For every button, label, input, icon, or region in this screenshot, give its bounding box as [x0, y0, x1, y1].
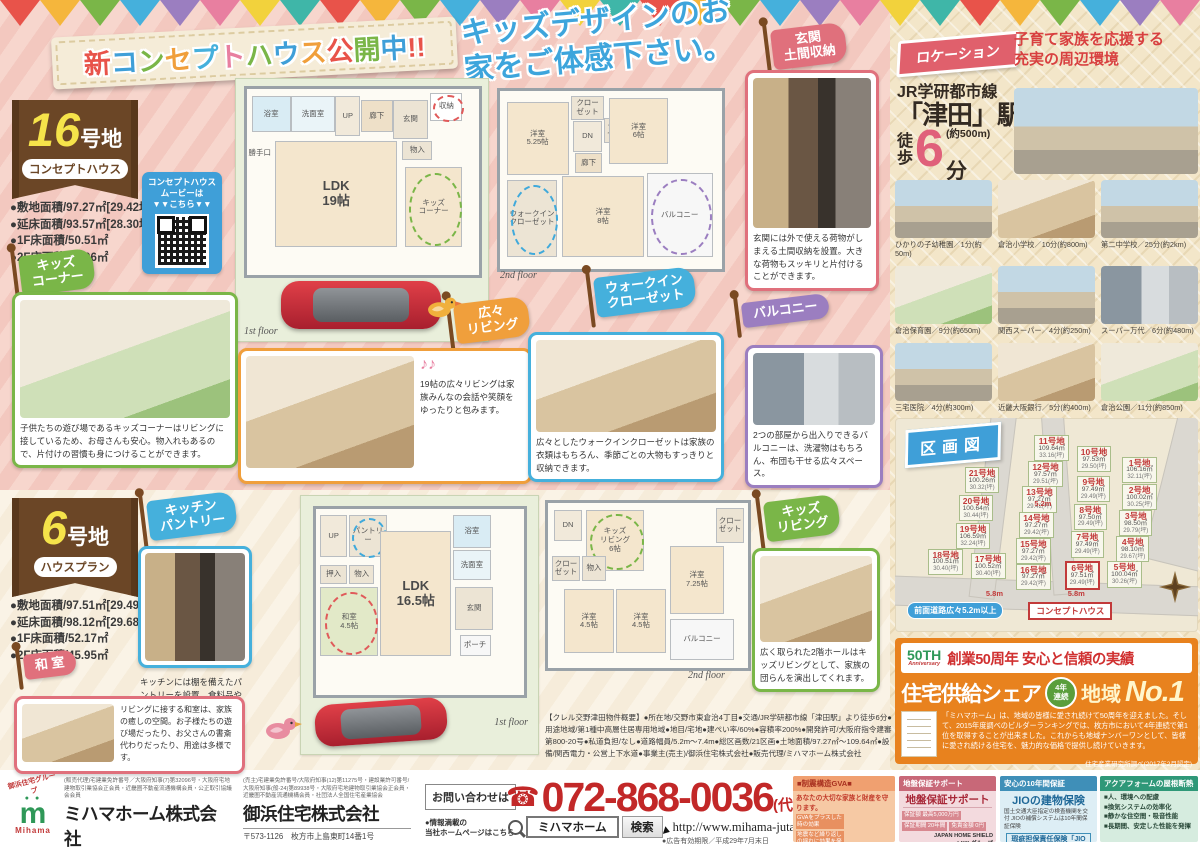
map-lot: 15号地97.27㎡29.42(坪)	[1016, 538, 1050, 564]
living-card-body: ♪♪ 19帖の広々リビングは家族みんなの会話や笑顔をゆったりと包みます。	[246, 356, 524, 468]
phone-icon: ☎	[506, 782, 540, 813]
aquafoam-badge: アクアフォームの屋根断熱 ■人、環境への配慮■換気システムの効率化■静かな住空間…	[1100, 776, 1198, 842]
room-クローゼット: クロー ゼット	[571, 96, 604, 119]
washitsu-photo	[22, 704, 114, 762]
map-lot-area: 97.27㎡	[1023, 523, 1049, 530]
qr-caption-line2: ムービーは	[146, 188, 218, 199]
map-lot: 9号地97.49㎡29.49(坪)	[1077, 476, 1110, 502]
living-caption-col: ♪♪ 19帖の広々リビングは家族みんなの会話や笑顔をゆったりと包みます。	[420, 356, 516, 468]
kids-corner-photo	[20, 300, 230, 418]
spot-caption: 近畿大阪銀行／5分(約400m)	[998, 403, 1095, 412]
lot16-tag: コンセプトハウス	[22, 159, 128, 179]
spot-card: 倉治保育園／9分(約650m)	[895, 266, 992, 335]
room-洋室4.5帖: 洋室 4.5帖	[616, 589, 666, 654]
spot-caption: 三宅医院／4分(約300m)	[895, 403, 992, 412]
map-lot-tsubo: 29.42(坪)	[1023, 530, 1049, 536]
room-UP: UP	[335, 96, 360, 135]
bunting-triangle	[1000, 0, 1040, 26]
room-LDK19帖: LDK 19帖	[275, 141, 398, 247]
company2-license: (売主)宅建業免許番号/大阪府知事(12)第11275号・建設業許可番号/大阪府…	[243, 778, 411, 801]
phone-row: ☎ 072-868-0036 (代)	[506, 774, 798, 821]
balcony-card: 2つの部屋から出入りできるバルコニーは、洗濯物はもちろん、布団も干せる広々スペー…	[745, 345, 883, 488]
car-illustration	[281, 281, 441, 329]
map-dim-b: 5.8m	[986, 589, 1003, 598]
aquafoam-header: アクアフォームの屋根断熱	[1100, 776, 1198, 791]
kids-living-caption: 広く取られた2階ホールはキッズリビングとして、家族の団らんを演出してくれます。	[760, 646, 872, 684]
search-button[interactable]: 検索	[622, 816, 663, 838]
map-lot-tsubo: 29.67(坪)	[1120, 554, 1145, 560]
room-物入: 物入	[582, 556, 606, 581]
room-収納: 収納	[430, 93, 462, 121]
qr-movie-box: コンセプトハウス ムービーは ▼▼こちら▼▼	[142, 172, 222, 274]
spec-item: ●延床面積/98.12㎡[29.68坪]	[10, 615, 154, 632]
lot16-floor1-label: 1st floor	[244, 326, 278, 337]
wic-caption: 広々としたウォークインクローゼットは家族の衣類はもちろん、季節ごとの大物もすっき…	[536, 436, 716, 474]
lot6-number: 6	[41, 506, 67, 551]
kids-living-photo	[760, 556, 872, 642]
gva-header: ■制震構造GVA■	[793, 776, 895, 791]
spot-photo	[998, 343, 1095, 401]
lot6-floor2-label: 2nd floor	[688, 670, 725, 681]
spec-item: ●1F床面積/52.17㎡	[10, 631, 154, 648]
lot6-floor1-label: 1st floor	[494, 717, 528, 728]
aquafoam-items: ■人、環境への配慮■換気システムの効率化■静かな住空間・吸音性能■長期間、安定し…	[1100, 791, 1198, 833]
ground-warranty-title: 地盤保証サポート	[903, 792, 992, 808]
anniversary-header: 50THAnniversary 創業50周年 安心と信頼の実績	[901, 643, 1192, 673]
ground-warranty-header: 地盤保証サポート	[899, 776, 996, 791]
homepage-note: ●情報満載の当社ホームページはこちら	[425, 818, 515, 838]
map-lot: 20号地100.64㎡30.44(坪)	[959, 495, 994, 521]
location-headline-line2: 充実の周辺環境	[1014, 51, 1119, 68]
search-row: ミハマホーム 検索 http://www.mihama-jutaku.co.jp	[508, 816, 835, 838]
company-logo: 御浜住宅グループ m Mihama	[6, 776, 60, 835]
bunting-triangle	[280, 0, 320, 26]
living-card: ♪♪ 19帖の広々リビングは家族みんなの会話や笑顔をゆったりと包みます。	[238, 348, 532, 484]
spot-photo	[1101, 343, 1198, 401]
map-dim-a: 5.2m	[1034, 499, 1051, 508]
spot-card: 近畿大阪銀行／5分(約400m)	[998, 343, 1095, 412]
room-洗面室: 洗面室	[291, 96, 335, 131]
lot6-floorplan-1f: UPパントリー浴室洗面室押入物入和室 4.5帖LDK 16.5帖玄関ポーチ	[313, 506, 527, 698]
washitsu-card: リビングに接する和室は、家族の癒しの空間。お子様たちの遊び場だったり、お父さんの…	[14, 696, 245, 774]
headline-char: ス	[299, 37, 328, 68]
map-lot-tsubo: 29.79(坪)	[1123, 528, 1148, 534]
anniversary-block: 50THAnniversary 創業50周年 安心と信頼の実績 住宅供給シェア …	[895, 638, 1198, 764]
spec-item: ●敷地面積/97.51㎡[29.49坪]	[10, 598, 154, 615]
lot6-floorplan-2f: DNキッズ リビング 6帖クロー ゼットクロー ゼット物入洋室 4.5帖洋室 4…	[545, 500, 751, 671]
region-label: 地域	[1081, 678, 1121, 707]
company1-license: (販売代理)宅建業免許番号／大阪府知事(7)第32096号・大阪府宅地建物取引業…	[64, 778, 232, 801]
warranty-cell: 保証期間 20年間	[902, 822, 947, 831]
map-lot: 14号地97.27㎡29.42(坪)	[1019, 512, 1053, 538]
map-lot-tsubo: 29.49(坪)	[1078, 521, 1103, 527]
room-DN: DN	[573, 121, 602, 151]
ad-expiry-note: ●広告有効期限／平成29年7月末日	[662, 836, 769, 846]
bunting-triangle	[1040, 0, 1080, 26]
walk-time-block: 徒歩 6 (約500m) 分	[897, 126, 990, 185]
bunting-triangle	[0, 0, 40, 26]
50th-anniversary-logo: 50THAnniversary	[907, 648, 941, 668]
map-lot-area: 106.59㎡	[960, 534, 987, 541]
map-lot-area: 97.53㎡	[1081, 457, 1107, 464]
spot-photo	[998, 266, 1095, 324]
qr-caption-line3: ▼▼こちら▼▼	[146, 199, 218, 210]
genkan-storage-photo	[753, 78, 871, 228]
bunting-triangle	[1120, 0, 1160, 26]
map-lot: 3号地98.50㎡29.79(坪)	[1119, 510, 1152, 536]
jio-header: 安心の10年間保証	[1000, 776, 1097, 791]
highlight-circle	[651, 179, 712, 255]
map-lot-tsubo: 30.44(坪)	[963, 513, 990, 519]
map-lot-tsubo: 29.42(坪)	[1020, 581, 1046, 587]
spot-photo	[998, 180, 1095, 238]
company2-block: (売主)宅建業免許番号/大阪府知事(12)第11275号・建設業許可番号/大阪府…	[243, 778, 411, 842]
headline-char: !	[407, 32, 418, 62]
genkan-storage-caption: 玄関には外で使える荷物がしまえる土間収納を設置。大きな荷物もスッキリと片付けるこ…	[753, 232, 871, 283]
lot16-number: 16	[28, 108, 80, 153]
headline-char: ハ	[245, 40, 274, 71]
map-lot-area: 98.50㎡	[1123, 521, 1148, 528]
aquafoam-item: ■静かな住空間・吸音性能	[1104, 812, 1194, 822]
car-illustration-2	[314, 696, 449, 747]
lot16-floor2-label: 2nd floor	[500, 270, 537, 281]
room-和室4.5帖: 和室 4.5帖	[320, 587, 378, 656]
gva-badge: ■制震構造GVA■ あなたの大切な家族と財産を守ります。 GVAをプラスした時の…	[793, 776, 895, 842]
map-lot-area: 98.10㎡	[1120, 547, 1145, 554]
map-lot: 4号地98.10㎡29.67(坪)	[1116, 536, 1149, 562]
map-lot-tsubo: 30.32(坪)	[969, 485, 996, 491]
jio-insurance-badge: 安心の10年間保証 JIOの建物保険 国土交通大臣指定の検査機関を交付 JIOの…	[1000, 776, 1097, 842]
highlight-circle	[409, 173, 462, 246]
phone-number: 072-868-0036	[542, 774, 773, 821]
headline-char: コ	[110, 47, 139, 78]
map-lot: 5号地100.04㎡30.26(坪)	[1107, 561, 1142, 587]
headline-char: プ	[191, 42, 220, 73]
lixil-brand: LIXILグループ	[899, 839, 996, 842]
music-notes-icon: ♪♪	[420, 356, 516, 374]
room-洋室8帖: 洋室 8帖	[562, 176, 644, 256]
property-overview-text: 【クレル交野津田物件概要】●所在地/交野市東倉治4丁目●交通/JR学研都市線「津…	[545, 712, 893, 761]
map-lot: 8号地97.50㎡29.49(坪)	[1074, 504, 1107, 530]
contact-label: お問い合わせは	[425, 784, 516, 810]
anniversary-heading: 創業50周年 安心と信頼の実績	[947, 648, 1134, 669]
map-lot: 21号地100.26㎡30.32(坪)	[965, 467, 1000, 493]
room-物入: 物入	[349, 565, 374, 584]
spot-caption: スーパー万代／6分(約480m)	[1101, 326, 1198, 335]
map-lot-tsubo: 29.51(坪)	[1032, 479, 1058, 485]
highlight-circle	[511, 185, 558, 255]
bunting-triangle	[240, 0, 280, 26]
mihama-logo-text: Mihama	[6, 826, 60, 835]
company2-name: 御浜住宅株式会社	[243, 801, 411, 829]
room-洋室4.5帖: 洋室 4.5帖	[564, 589, 614, 654]
spot-card: ひかりの子幼稚園／1分(約50m)	[895, 180, 992, 258]
certificate-thumbnail	[901, 711, 937, 757]
room-物入: 物入	[402, 141, 432, 160]
bird-illustration	[424, 292, 462, 320]
room-ポーチ: ポーチ	[460, 635, 491, 656]
warranty-cell: 保証額 最高5,000万円	[902, 811, 961, 820]
map-lot-area: 100.52㎡	[975, 564, 1002, 571]
spot-caption: 倉治保育園／9分(約650m)	[895, 326, 992, 335]
room-クローゼット: クロー ゼット	[716, 508, 744, 543]
room-バルコニー: バルコニー	[647, 173, 713, 257]
room-クローゼット: クロー ゼット	[552, 556, 580, 581]
spot-card: 三宅医院／4分(約300m)	[895, 343, 992, 412]
map-lot-tsubo: 30.40(坪)	[975, 571, 1002, 577]
spot-photo	[895, 266, 992, 324]
bunting-triangle	[160, 0, 200, 26]
map-lot: 18号地100.51㎡30.40(坪)	[928, 549, 963, 575]
room-洗面室: 洗面室	[453, 550, 490, 580]
room-廊下: 廊下	[575, 153, 601, 173]
consecutive-years-badge: 4年連続	[1045, 677, 1077, 709]
room-バルコニー: バルコニー	[670, 619, 734, 661]
headline-char: 開	[353, 34, 382, 65]
headline-char: ン	[137, 45, 166, 76]
living-photo	[246, 356, 414, 468]
lot16-badge: 16号地 コンセプトハウス	[12, 100, 138, 199]
map-lot-area: 97.49㎡	[1081, 487, 1106, 494]
room-洋室6帖: 洋室 6帖	[609, 98, 669, 164]
room-玄関: 玄関	[393, 100, 427, 139]
lot6-suffix: 号地	[67, 526, 109, 549]
jio-title: JIOの建物保険	[1000, 792, 1097, 808]
map-lot-tsubo: 29.49(坪)	[1081, 494, 1106, 500]
spec-item: ●1F床面積/50.51㎡	[10, 233, 154, 250]
map-lot-tsubo: 33.16(坪)	[1038, 453, 1065, 459]
compass-icon	[1158, 570, 1192, 604]
map-lot: 17号地100.52㎡30.40(坪)	[971, 553, 1006, 579]
room-ウォークインクローゼット: ウォークイン クローゼット	[507, 180, 558, 257]
bunting-triangle	[800, 0, 840, 26]
spot-photo	[895, 343, 992, 401]
spot-caption: 倉治公園／11分(約850m)	[1101, 403, 1198, 412]
map-lot: 16号地97.27㎡29.42(坪)	[1016, 564, 1050, 590]
spot-card: 倉治公園／11分(約850m)	[1101, 343, 1198, 412]
map-lot-area: 109.64㎡	[1038, 446, 1065, 453]
pantry-photo	[145, 553, 245, 661]
spec-item: ●敷地面積/97.27㎡[29.42坪]	[10, 200, 154, 217]
bunting-triangle	[840, 0, 880, 26]
map-lot-tsubo: 32.11(坪)	[1126, 474, 1153, 480]
headline-char: 中	[380, 33, 409, 64]
headline-char: ウ	[272, 38, 301, 69]
bunting-triangle	[120, 0, 160, 26]
search-input[interactable]: ミハマホーム	[526, 816, 619, 838]
room-LDK16.5帖: LDK 16.5帖	[380, 531, 451, 656]
qr-code	[155, 214, 209, 268]
map-lot: 7号地97.49㎡29.49(坪)	[1071, 531, 1104, 557]
share-label: 住宅供給シェア	[901, 678, 1041, 708]
company2-address: 〒573-1126 枚方市上島東町14番1号	[243, 831, 411, 842]
spot-caption: 第二中学校／25分(約2km)	[1101, 240, 1198, 249]
spot-photo	[1101, 266, 1198, 324]
share-row: 住宅供給シェア 4年連続 地域 No.1	[901, 676, 1192, 709]
map-lot-area: 100.64㎡	[963, 506, 990, 513]
map-note-road: 前面道路広々5.2m以上	[907, 602, 1003, 619]
genkan-storage-card: 玄関には外で使える荷物がしまえる土間収納を設置。大きな荷物もスッキリと片付けるこ…	[745, 70, 879, 291]
lot16-suffix: 号地	[80, 128, 122, 151]
room-勝手口: 勝手口	[247, 145, 273, 162]
map-lot: 2号地100.02㎡30.25(坪)	[1122, 484, 1157, 510]
station-photo	[1014, 88, 1198, 174]
lot6-tag: ハウスプラン	[34, 557, 117, 577]
bunting-triangle	[960, 0, 1000, 26]
jio-body: 国土交通大臣指定の検査機関を交付 JIOの補償システムは10年間保証保険	[1000, 808, 1097, 832]
map-lot-tsubo: 30.40(坪)	[932, 566, 959, 572]
wic-photo	[536, 340, 716, 432]
map-lot-area: 97.27㎡	[1020, 549, 1046, 556]
spot-photo	[1101, 180, 1198, 238]
bunting-triangle	[80, 0, 120, 26]
anniversary-body-row: 「ミハマホーム」は、地域の皆様に愛され続けて50周年を迎えました。そして、201…	[901, 711, 1192, 757]
spot-caption: 倉治小学校／10分(約800m)	[998, 240, 1095, 249]
headline-char: 新	[83, 48, 112, 79]
jio-box: 瑕疵担保責任保険「JIOわが家の保険」	[1006, 833, 1091, 842]
spot-card: 関西スーパー／4分(約250m)	[998, 266, 1095, 335]
spot-photo	[895, 180, 992, 238]
map-lot-tsubo: 32.24(坪)	[960, 541, 987, 547]
walk-minutes: 6	[915, 126, 944, 173]
qr-caption-line1: コンセプトハウス	[146, 177, 218, 188]
map-lot: 19号地106.59㎡32.24(坪)	[956, 523, 991, 549]
gva-item: 地震など繰り返しの揺れに効果を発揮	[796, 831, 844, 842]
spec-item: ●延床面積/93.57㎡[28.30坪]	[10, 217, 154, 234]
spot-card: 倉治小学校／10分(約800m)	[998, 180, 1095, 258]
pantry-card	[138, 546, 252, 668]
warranty-cell: 免責金額 0円	[949, 822, 986, 831]
bunting-triangle	[1080, 0, 1120, 26]
map-note-concept: コンセプトハウス	[1028, 602, 1112, 620]
lot6-site-plot: UPパントリー浴室洗面室押入物入和室 4.5帖LDK 16.5帖玄関ポーチ 1s…	[300, 495, 539, 755]
lot16-floorplan-2f: 洋室 5.25帖クロー ゼットDNクロー ゼット廊下洋室 6帖洋室 8帖ウォーク…	[497, 88, 725, 272]
room-DN: DN	[554, 510, 582, 542]
aquafoam-item: ■人、環境への配慮	[1104, 793, 1194, 803]
anniversary-source: 住宅産業研究所調べ(2017年2月認定)	[901, 758, 1192, 768]
spot-caption: ひかりの子幼稚園／1分(約50m)	[895, 240, 992, 258]
spot-card: 第二中学校／25分(約2km)	[1101, 180, 1198, 258]
lot16-floorplan-1f: 浴室洗面室UP廊下玄関収納勝手口LDK 19帖物入キッズ コーナー	[244, 86, 482, 278]
walk-detail: (約500m) 分	[946, 126, 990, 185]
room-浴室: 浴室	[252, 96, 291, 131]
spot-card: スーパー万代／6分(約480m)	[1101, 266, 1198, 335]
map-lot-tsubo: 30.25(坪)	[1126, 502, 1153, 508]
balcony-caption: 2つの部屋から出入りできるバルコニーは、洗濯物はもちろん、布団も干せる広々スペー…	[753, 429, 875, 480]
company1-name: ミハマホーム株式会社	[64, 801, 232, 847]
map-lot-area: 97.57㎡	[1032, 472, 1058, 479]
flyer-page: 新コンセプトハウス公開中!! キッズデザインのお家をご体感下さい。 16号地 コ…	[0, 0, 1200, 847]
map-lot-tsubo: 30.26(坪)	[1111, 579, 1138, 585]
walk-label: 徒歩	[897, 134, 913, 168]
gva-item: GVAをプラスした時の効果	[796, 814, 844, 829]
room-押入: 押入	[320, 565, 347, 584]
washitsu-caption: リビングに接する和室は、家族の癒しの空間。お子様たちの遊び場だったり、お父さんの…	[120, 704, 232, 764]
bird-illustration-2	[262, 712, 302, 742]
search-icon	[508, 820, 523, 835]
kids-corner-card: 子供たちの遊び場であるキッズコーナーはリビングに接しているため、お母さんも安心。…	[12, 292, 238, 468]
lot6-badge: 6号地 ハウスプラン	[12, 498, 138, 597]
ground-warranty-cells: 保証額 最高5,000万円保証期間 20年間免責金額 0円	[899, 809, 996, 833]
company1-block: (販売代理)宅建業免許番号／大阪府知事(7)第32096号・大阪府宅地建物取引業…	[64, 778, 232, 847]
room-浴室: 浴室	[453, 515, 490, 549]
bunting-triangle	[40, 0, 80, 26]
map-lot: 12号地97.57㎡29.51(坪)	[1028, 461, 1062, 487]
kids-corner-caption: 子供たちの遊び場であるキッズコーナーはリビングに接しているため、お母さんも安心。…	[20, 422, 230, 460]
map-lot: 6号地97.51㎡29.49(坪)	[1065, 561, 1100, 589]
map-lot: 10号地97.53㎡29.50(坪)	[1077, 446, 1111, 472]
gva-lead: あなたの大切な家族と財産を守ります。	[793, 791, 895, 813]
room-キッズコーナー: キッズ コーナー	[405, 167, 463, 247]
highlight-circle	[433, 95, 464, 122]
map-lot: 11号地109.64㎡33.16(坪)	[1034, 435, 1069, 461]
living-caption: 19帖の広々リビングは家族みんなの会話や笑顔をゆったりと包みます。	[420, 378, 516, 416]
aquafoam-item: ■換気システムの効率化	[1104, 803, 1194, 813]
map-lot-tsubo: 29.50(坪)	[1081, 464, 1107, 470]
map-lot-tsubo: 29.49(坪)	[1075, 549, 1100, 555]
headline-char: セ	[164, 44, 193, 75]
room-UP: UP	[320, 515, 347, 558]
map-lot-tsubo: 29.49(坪)	[1070, 580, 1095, 586]
room-廊下: 廊下	[361, 100, 393, 132]
map-lot: 1号地106.16㎡32.11(坪)	[1122, 457, 1157, 483]
balcony-photo	[753, 353, 875, 425]
no1-label: No.1	[1125, 676, 1184, 709]
walk-distance: (約500m)	[946, 126, 990, 141]
wic-card: 広々としたウォークインクローゼットは家族の衣類はもちろん、季節ごとの大物もすっき…	[528, 332, 724, 482]
location-headline: 子育て家族を応援する 充実の周辺環境	[1014, 30, 1199, 69]
aquafoam-item: ■長期間、安定した性能を発揮	[1104, 822, 1194, 832]
lot-map: 21号地100.26㎡30.32(坪)20号地100.64㎡30.44(坪)19…	[895, 418, 1198, 632]
bunting-triangle	[880, 0, 920, 26]
anniversary-body-text: 「ミハマホーム」は、地域の皆様に愛され続けて50周年を迎えました。そして、201…	[942, 711, 1192, 757]
map-lot-tsubo: 29.42(坪)	[1020, 556, 1046, 562]
headline-char: 公	[326, 35, 355, 66]
headline-char: ト	[218, 41, 247, 72]
map-dim-c: 5.8m	[1068, 589, 1085, 598]
neighborhood-spot-grid: ひかりの子幼稚園／1分(約50m)倉治小学校／10分(約800m)第二中学校／2…	[895, 180, 1200, 412]
room-洋室7.25帖: 洋室 7.25帖	[670, 546, 724, 614]
spot-caption: 関西スーパー／4分(約250m)	[998, 326, 1095, 335]
highlight-circle	[325, 592, 378, 655]
location-headline-line1: 子育て家族を応援する	[1014, 31, 1164, 48]
bunting-triangle	[920, 0, 960, 26]
washitsu-card-body: リビングに接する和室は、家族の癒しの空間。お子様たちの遊び場だったり、お父さんの…	[22, 704, 237, 764]
bunting-triangle	[1160, 0, 1200, 26]
bunting-triangle	[200, 0, 240, 26]
room-洋室5.25帖: 洋室 5.25帖	[507, 102, 569, 175]
kids-living-card: 広く取られた2階ホールはキッズリビングとして、家族の団らんを演出してくれます。	[752, 548, 880, 692]
headline-char: !	[416, 32, 427, 62]
ground-warranty-badge: 地盤保証サポート 地盤保証サポート 保証額 最高5,000万円保証期間 20年間…	[899, 776, 996, 842]
room-玄関: 玄関	[455, 587, 492, 630]
gva-items: GVAをプラスした時の効果地震など繰り返しの揺れに効果を発揮揺れを約50%軽減建…	[793, 813, 895, 842]
cursor-icon	[663, 826, 671, 835]
